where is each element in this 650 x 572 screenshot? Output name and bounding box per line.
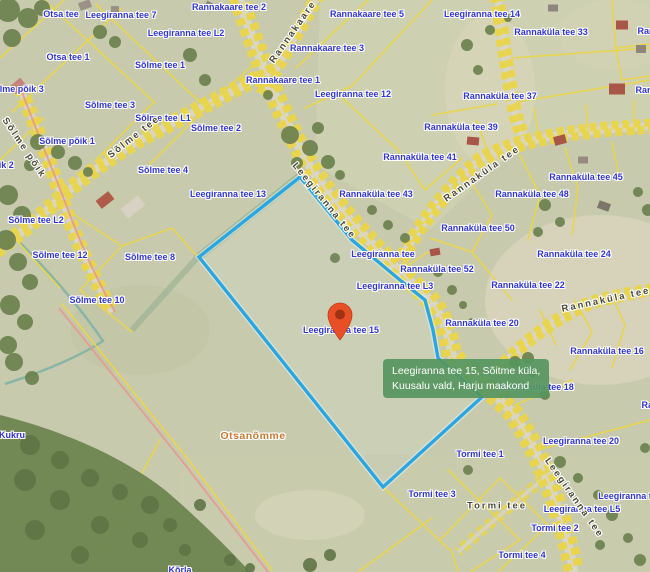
- cadastral-overlay: [0, 0, 650, 572]
- address-tooltip: Leegiranna tee 15, Sõitme küla, Kuusalu …: [383, 359, 549, 398]
- location-marker-icon[interactable]: [327, 302, 353, 342]
- tooltip-address-line1: Leegiranna tee 15, Sõitme küla,: [392, 364, 540, 379]
- tooltip-address-line2: Kuusalu vald, Harju maakond: [392, 379, 540, 394]
- map-canvas[interactable]: Otsa teeLeegiranna tee 7Rannakaare tee 2…: [0, 0, 650, 572]
